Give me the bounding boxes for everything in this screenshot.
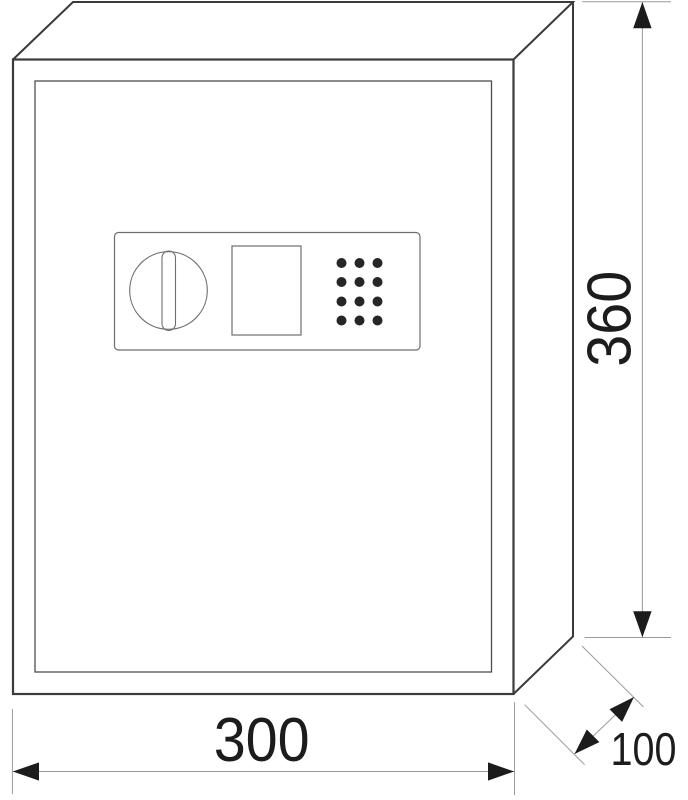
svg-text:100: 100 (611, 723, 677, 775)
svg-text:360: 360 (576, 271, 645, 367)
svg-text:300: 300 (214, 706, 310, 775)
